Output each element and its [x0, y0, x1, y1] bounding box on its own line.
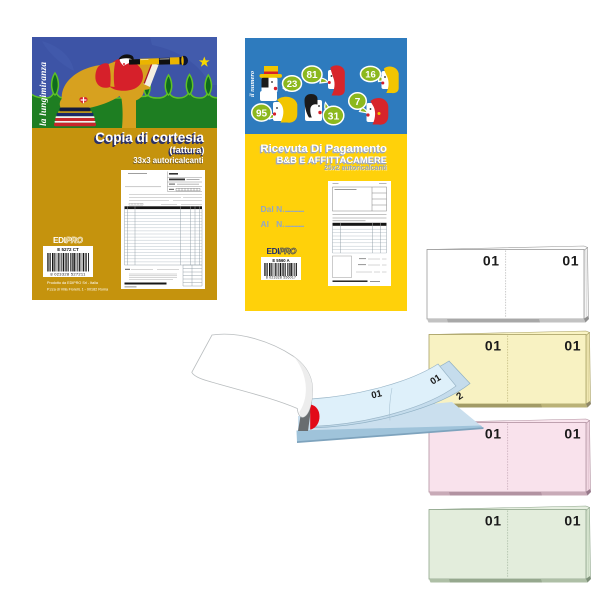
svg-text:01: 01: [483, 253, 500, 269]
svg-text:01: 01: [564, 338, 581, 354]
svg-text:01: 01: [485, 426, 502, 442]
svg-text:01: 01: [562, 253, 579, 269]
svg-text:01: 01: [564, 513, 581, 529]
svg-text:01: 01: [564, 426, 581, 442]
svg-text:01: 01: [485, 513, 502, 529]
svg-text:01: 01: [485, 338, 502, 354]
